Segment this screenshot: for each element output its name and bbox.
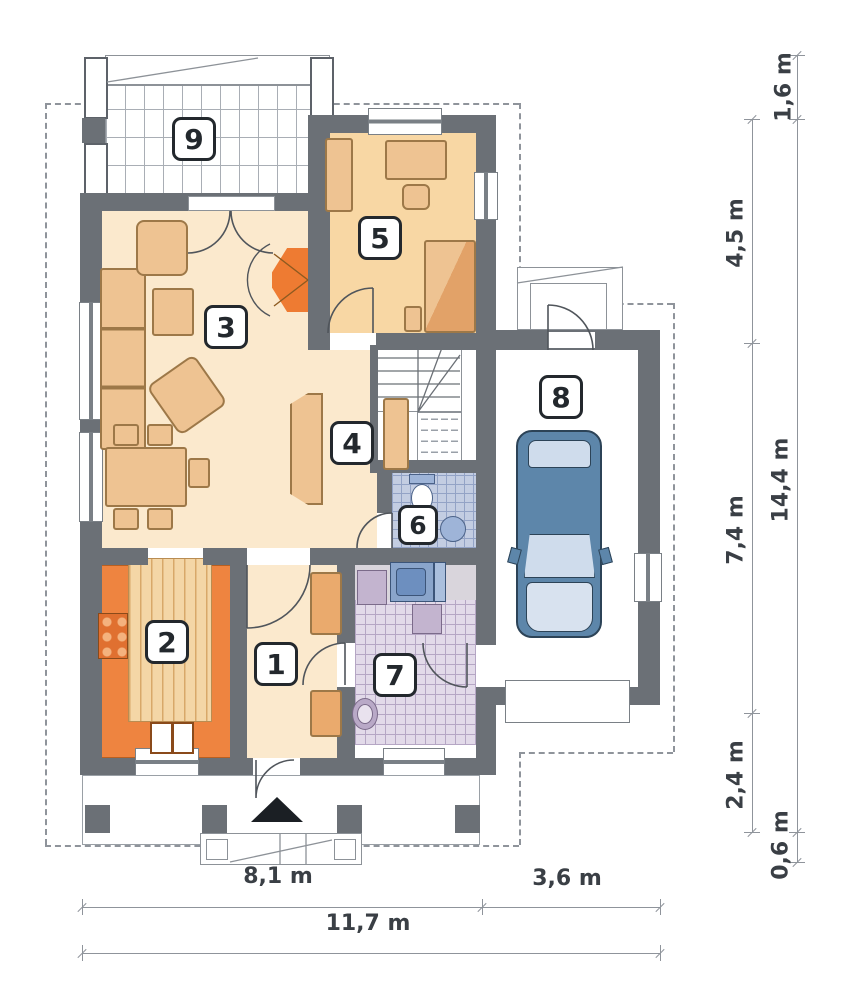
wall-kitchen-hall	[230, 565, 247, 758]
dim-label-2-4: 2,4 m	[724, 740, 749, 810]
car-windshield	[524, 534, 595, 578]
room-label-7-number: 7	[385, 659, 404, 692]
room-label-7: 7	[373, 653, 417, 697]
wall-garage-right	[638, 330, 660, 705]
garage-door-panel	[505, 680, 630, 723]
dim-line-right-inner	[752, 119, 753, 832]
wc-toilet-icon	[409, 474, 435, 484]
entrance-canopy-inner	[530, 283, 607, 330]
kitchen-sink-icon	[150, 722, 194, 754]
dim-label-8-1: 8,1 m	[243, 864, 313, 889]
room-label-6: 6	[398, 505, 438, 545]
dim-line-bottom-lower	[82, 953, 660, 954]
room-label-3: 3	[204, 305, 248, 349]
room-label-9-number: 9	[184, 123, 203, 156]
room-label-5: 5	[358, 216, 402, 260]
bath-door-opening-left	[337, 643, 355, 687]
room-label-5-number: 5	[370, 222, 389, 255]
bed	[424, 240, 476, 333]
terrace-roof-edge	[105, 55, 330, 85]
bath-toilet-seat-icon	[357, 704, 373, 724]
bath-door-opening-right	[476, 645, 496, 690]
terrace-floor	[105, 85, 330, 195]
dim-label-1-6: 1,6 m	[772, 52, 797, 122]
hall-wardrobe-top	[310, 572, 342, 635]
shower-tray-icon	[396, 568, 426, 596]
wall-mid-horizontal-b	[203, 548, 247, 565]
coffee-table	[152, 288, 194, 336]
sofa	[100, 268, 146, 450]
room5-right-window	[474, 172, 498, 220]
bath-window	[383, 748, 445, 776]
canopy-door-opening	[548, 332, 595, 348]
dim-label-0-6: 0,6 m	[769, 810, 794, 880]
eaves-outline-right-lower	[519, 752, 521, 845]
porch-column-3	[337, 805, 362, 833]
room-label-8-number: 8	[551, 381, 570, 414]
step-column-base-left	[206, 839, 228, 860]
eaves-outline-garage-bottom	[519, 752, 673, 754]
dining-chair-1	[113, 424, 139, 446]
dim-line-right-outer	[797, 55, 798, 862]
terrace-column-right	[310, 57, 334, 119]
front-door-opening	[253, 758, 300, 775]
room-label-3-number: 3	[216, 311, 235, 344]
corridor-cabinet	[383, 398, 409, 470]
desk	[385, 140, 447, 180]
room-label-2-number: 2	[157, 626, 176, 659]
dim-label-14-4: 14,4 m	[769, 438, 794, 523]
garage-window	[634, 553, 662, 602]
car-rear-window	[528, 440, 591, 468]
terrace-column-left-bottom	[84, 143, 108, 197]
room-label-1: 1	[254, 642, 298, 686]
room-label-9: 9	[172, 117, 216, 161]
terrace-column-left-top	[84, 57, 108, 119]
terrace-door-opening	[188, 196, 275, 211]
desk-chair	[402, 184, 430, 210]
room5-wardrobe	[325, 138, 353, 212]
room-label-2: 2	[145, 620, 189, 664]
room5-top-window	[368, 108, 442, 135]
porch-column-2	[202, 805, 227, 833]
room-label-4-number: 4	[342, 427, 361, 460]
armchair-top	[136, 220, 188, 276]
dining-chair-4	[147, 508, 173, 530]
washer-icon	[357, 570, 387, 605]
eaves-outline-garage-right	[673, 303, 675, 752]
shower-panel-icon	[434, 562, 446, 602]
sideboard-trapezoid	[290, 393, 323, 505]
wc-sink-icon	[440, 516, 466, 542]
dining-table	[105, 447, 187, 507]
porch-column-4	[455, 805, 480, 833]
dining-chair-3	[113, 508, 139, 530]
cooktop-icon	[98, 613, 128, 659]
car-hood	[526, 582, 593, 632]
porch-column-1	[85, 805, 110, 833]
terrace-wall-left-chunk	[82, 118, 105, 143]
nightstand	[404, 306, 422, 332]
step-column-base-right	[334, 839, 356, 860]
eaves-outline-left	[45, 103, 47, 845]
dim-label-7-4: 7,4 m	[724, 495, 749, 565]
dining-chair-2	[147, 424, 173, 446]
room-label-8: 8	[539, 375, 583, 419]
car-icon	[516, 430, 602, 638]
dining-chair-5	[188, 458, 210, 488]
wall-mid-horizontal-a	[100, 548, 148, 565]
entrance-arrow-icon	[251, 797, 303, 822]
wall-wc-left	[377, 473, 392, 513]
dim-line-bottom-upper	[82, 907, 660, 908]
dim-label-11-7: 11,7 m	[326, 911, 411, 936]
dim-label-4-5: 4,5 m	[724, 198, 749, 268]
dim-label-3-6: 3,6 m	[532, 866, 602, 891]
floor-plan: 9 5 3 4 8 6 2 1 7 1,6 m 4,5 m 14,4 m 7,4…	[0, 0, 859, 1000]
hall-wardrobe-bottom	[310, 690, 342, 737]
room-label-6-number: 6	[409, 511, 426, 540]
room-label-1-number: 1	[266, 648, 285, 681]
bath-cabinet-icon	[412, 604, 442, 634]
room-label-4: 4	[330, 421, 374, 465]
